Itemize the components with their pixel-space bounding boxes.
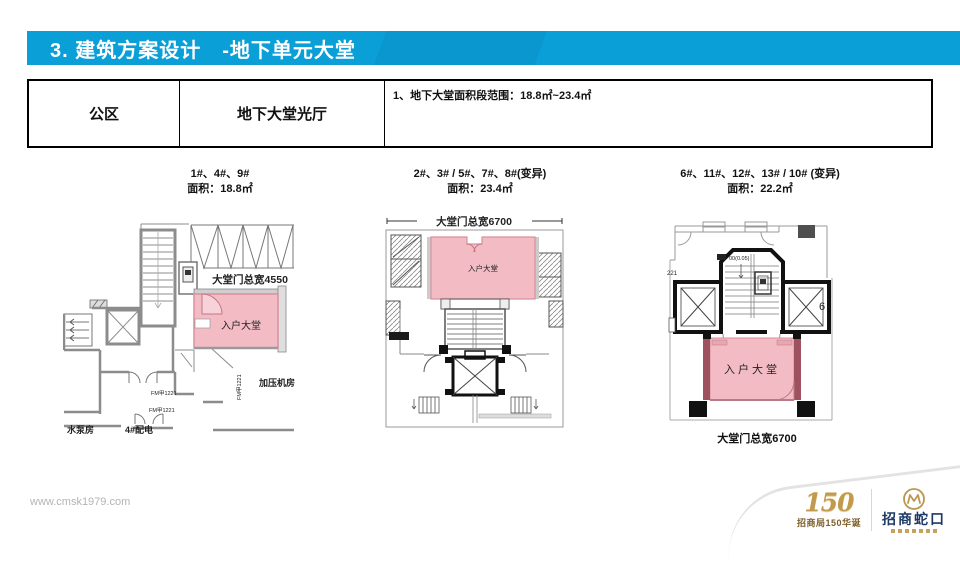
floor-plan-right: 00(0.05) 221 6 入户大堂 <box>667 220 837 427</box>
corner-column <box>689 401 707 417</box>
table-cell-area-range: 1、地下大堂面积段范围：18.8㎡~23.4㎡ <box>385 81 931 146</box>
room-label: 加压机房 <box>258 377 295 388</box>
brand-tagline <box>882 529 946 533</box>
elevator-left <box>675 282 721 332</box>
plan3-buildings: 6#、11#、12#、13# / 10# (变异) <box>645 167 875 182</box>
elevator <box>445 351 505 395</box>
summary-table: 公区 地下大堂光厅 1、地下大堂面积段范围：18.8㎡~23.4㎡ <box>27 79 933 148</box>
unit-doors <box>400 309 549 372</box>
left-note: 221 <box>667 271 678 277</box>
elevator <box>107 310 139 344</box>
bottom-wall <box>479 414 551 418</box>
plan1-area: 面积：18.8㎡ <box>110 182 330 197</box>
floor-plan-middle: 大堂门总宽6700 入户大堂 <box>383 213 566 431</box>
double-door <box>129 372 163 424</box>
lobby-label: 入户大堂 <box>724 362 780 376</box>
corner-column <box>797 401 815 417</box>
level-note: 00(0.05) <box>729 256 750 262</box>
entry-lobby: 入户大堂 <box>427 237 539 299</box>
party-wall <box>473 395 477 423</box>
brand-logo: 招商蛇口 <box>882 487 946 533</box>
logo-divider <box>871 489 872 531</box>
anniversary-150-mark: 150 <box>797 491 861 515</box>
stairs <box>441 299 509 349</box>
right-note: 6 <box>819 301 825 313</box>
website-url: www.cmsk1979.com <box>30 496 130 508</box>
plan1-buildings: 1#、4#、9# <box>110 167 330 182</box>
room-label-clipped: 4#配电 <box>125 424 153 434</box>
label-block <box>389 332 409 340</box>
door-tag: FM甲1221 <box>236 374 243 400</box>
entry-lobby: 入户大堂 <box>194 286 286 368</box>
slide: 3. 建筑方案设计 -地下单元大堂 公区 地下大堂光厅 1、地下大堂面积段范围：… <box>0 0 960 540</box>
door-tag: FM甲1221 <box>149 407 175 414</box>
brand-emblem-icon <box>902 487 926 511</box>
wall-niche <box>669 318 675 332</box>
entry-lobby: 入户大堂 <box>703 331 801 400</box>
plan3-caption: 6#、11#、12#、13# / 10# (变异) 面积：22.2㎡ <box>645 167 875 197</box>
door-chip <box>717 254 726 260</box>
plan1-caption: 1#、4#、9# 面积：18.8㎡ <box>110 167 330 197</box>
room-label-clipped: 水泵房 <box>67 424 94 434</box>
door-width-label: 大堂门总宽4550 <box>212 273 288 286</box>
wall-stub <box>439 345 448 354</box>
floor-plan-left: 入户大堂 大堂门总宽4550 FM甲1221 FM甲1221 FM甲1221 加… <box>63 222 295 434</box>
plan2-caption: 2#、3# / 5#、7#、8#(变异) 面积：23.4㎡ <box>370 167 590 197</box>
wall-stub <box>502 345 511 354</box>
table-cell-zone: 公区 <box>29 81 180 146</box>
brand-name: 招商蛇口 <box>882 511 946 527</box>
side-stair <box>64 314 92 346</box>
lower-stairs <box>412 397 538 413</box>
door-width-label: 大堂门总宽6700 <box>436 215 512 228</box>
page-title: 3. 建筑方案设计 -地下单元大堂 <box>50 34 356 63</box>
glazing-zigzag <box>191 225 294 268</box>
anniversary-text: 招商局150华诞 <box>797 516 861 529</box>
anniversary-logo: 150 招商局150华诞 <box>797 491 861 529</box>
lobby-label: 入户大堂 <box>468 263 498 273</box>
lobby-label: 入户大堂 <box>221 319 261 332</box>
plan3-area: 面积：22.2㎡ <box>645 182 875 197</box>
equipment-block <box>798 225 815 238</box>
footer-logos: 150 招商局150华诞 招商蛇口 <box>797 486 946 534</box>
plan2-area: 面积：23.4㎡ <box>370 182 590 197</box>
door-width-label: 大堂门总宽6700 <box>667 430 847 446</box>
plan2-buildings: 2#、3# / 5#、7#、8#(变异) <box>370 167 590 182</box>
door-tag: FM甲1221 <box>151 390 177 397</box>
table-cell-space: 地下大堂光厅 <box>180 81 385 146</box>
